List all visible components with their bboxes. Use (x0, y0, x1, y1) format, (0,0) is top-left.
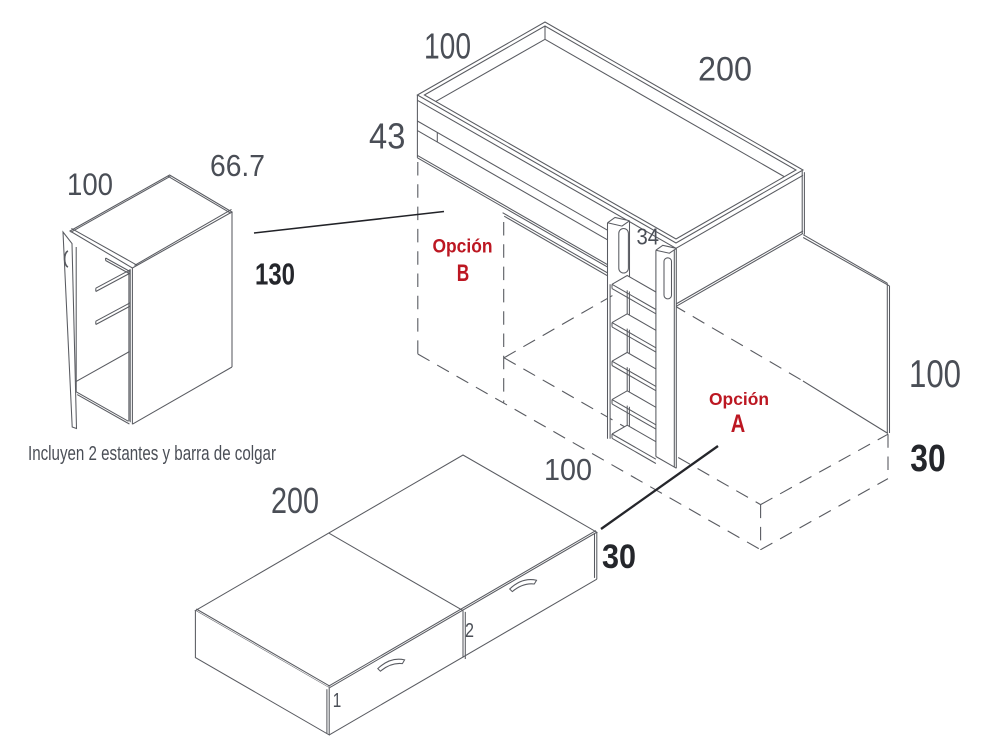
svg-text:34: 34 (637, 224, 660, 250)
svg-text:2: 2 (465, 619, 474, 642)
svg-text:30: 30 (910, 438, 945, 480)
svg-text:100: 100 (424, 25, 471, 66)
svg-text:Incluyen 2 estantes y barra de: Incluyen 2 estantes y barra de colgar (28, 443, 276, 465)
svg-text:A: A (731, 411, 746, 438)
svg-text:100: 100 (909, 353, 961, 396)
svg-text:100: 100 (67, 166, 113, 202)
svg-text:66.7: 66.7 (210, 150, 265, 183)
svg-text:43: 43 (369, 116, 405, 157)
svg-text:130: 130 (255, 257, 295, 292)
svg-text:200: 200 (698, 51, 752, 89)
svg-text:1: 1 (333, 689, 342, 712)
svg-text:30: 30 (602, 538, 636, 576)
svg-text:Opción: Opción (709, 389, 769, 409)
svg-text:200: 200 (271, 481, 319, 521)
svg-text:100: 100 (544, 454, 592, 487)
svg-text:Opción: Opción (433, 237, 493, 258)
svg-text:B: B (457, 260, 470, 287)
